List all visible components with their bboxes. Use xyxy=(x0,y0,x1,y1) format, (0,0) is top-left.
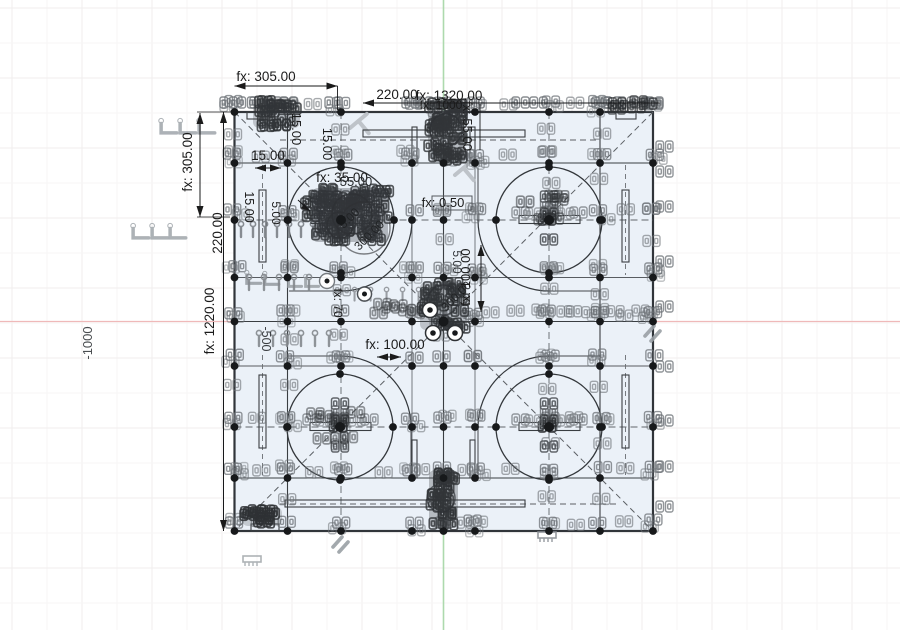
svg-text:5.00: 5.00 xyxy=(269,201,283,225)
svg-text:fx: 100.00: fx: 100.00 xyxy=(365,337,424,352)
svg-text:15.00: 15.00 xyxy=(320,128,335,161)
svg-text:fx: 1220.00: fx: 1220.00 xyxy=(202,288,217,355)
svg-text:fx: 305.00: fx: 305.00 xyxy=(180,132,195,191)
svg-text:fx: 305.00: fx: 305.00 xyxy=(236,69,295,84)
svg-text:-500: -500 xyxy=(259,326,273,351)
svg-text:55.00: 55.00 xyxy=(340,174,373,189)
svg-text:fx: 55.00: fx: 55.00 xyxy=(460,101,475,151)
svg-text:fx: 100.00: fx: 100.00 xyxy=(458,248,473,305)
svg-text:15.00: 15.00 xyxy=(251,148,285,163)
svg-text:fx: 1000: fx: 1000 xyxy=(420,98,463,112)
svg-text:220.00: 220.00 xyxy=(376,87,417,102)
svg-text:15.00: 15.00 xyxy=(242,191,256,222)
svg-text:fx: 0.50: fx: 0.50 xyxy=(422,195,465,210)
svg-text:-1000: -1000 xyxy=(80,326,95,359)
svg-text:220.00: 220.00 xyxy=(210,212,225,253)
svg-text:15.00: 15.00 xyxy=(289,113,304,146)
svg-text:fx: 70: fx: 70 xyxy=(331,288,345,318)
